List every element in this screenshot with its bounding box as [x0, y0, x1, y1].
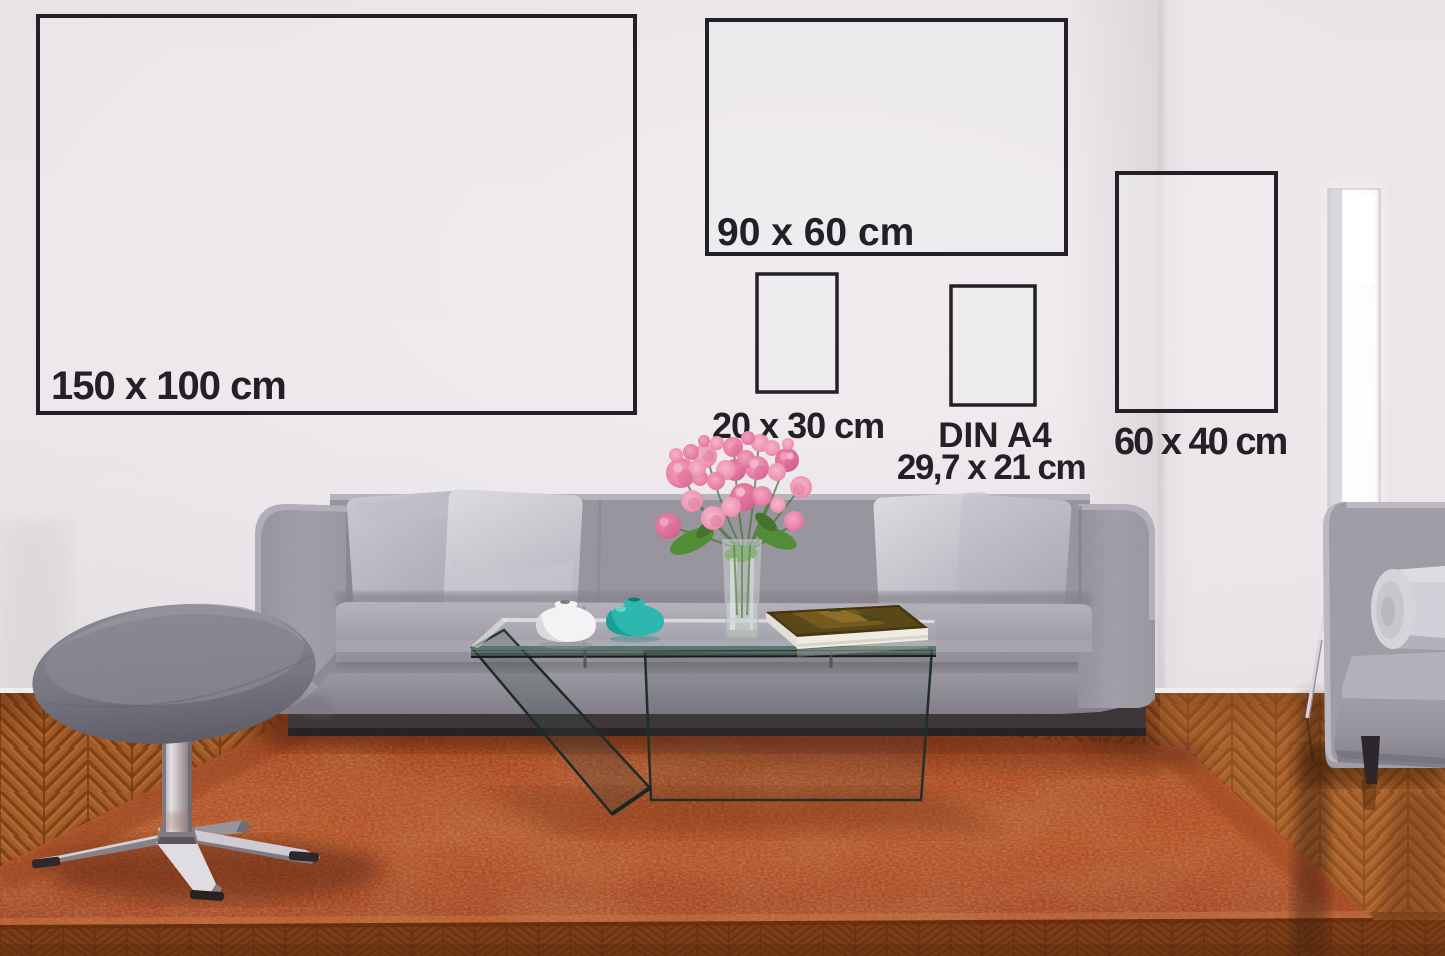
svg-text:90 x 60 cm: 90 x 60 cm [717, 211, 914, 254]
svg-text:150 x 100 cm: 150 x 100 cm [51, 364, 286, 408]
svg-text:60 x 40 cm: 60 x 40 cm [1114, 421, 1286, 463]
